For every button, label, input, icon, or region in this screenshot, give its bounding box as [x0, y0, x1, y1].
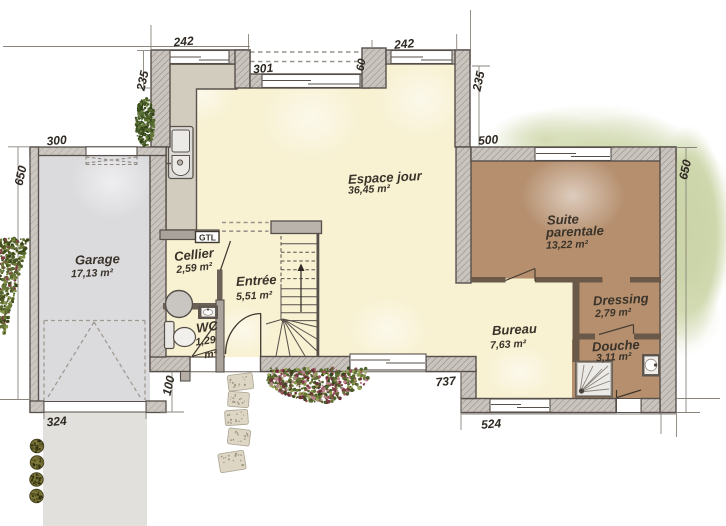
svg-text:7,63 m²: 7,63 m²	[490, 338, 527, 352]
svg-text:WC: WC	[195, 318, 219, 336]
svg-text:242: 242	[393, 36, 415, 52]
svg-text:36,45 m²: 36,45 m²	[348, 183, 391, 197]
svg-text:GTL: GTL	[199, 233, 216, 243]
svg-text:242: 242	[172, 34, 194, 50]
svg-text:13,22 m²: 13,22 m²	[546, 238, 589, 251]
svg-text:Dressing: Dressing	[593, 291, 649, 309]
svg-text:parentale: parentale	[545, 223, 604, 240]
svg-text:300: 300	[46, 133, 67, 149]
svg-text:235: 235	[133, 69, 151, 93]
svg-text:17,13 m²: 17,13 m²	[71, 267, 114, 280]
svg-text:500: 500	[478, 132, 499, 148]
svg-text:524: 524	[481, 416, 502, 432]
svg-text:Bureau: Bureau	[492, 321, 538, 338]
svg-text:3,11 m²: 3,11 m²	[596, 350, 632, 364]
svg-text:Garage: Garage	[75, 251, 120, 268]
svg-text:301: 301	[253, 61, 274, 77]
svg-text:m²: m²	[204, 348, 219, 362]
svg-text:650: 650	[12, 164, 30, 187]
svg-text:737: 737	[435, 374, 457, 390]
svg-text:5,51 m²: 5,51 m²	[236, 289, 273, 303]
svg-text:Entrée: Entrée	[236, 272, 277, 289]
svg-text:324: 324	[46, 414, 67, 430]
svg-text:100: 100	[160, 374, 178, 397]
svg-text:235: 235	[469, 70, 487, 94]
svg-text:2,79 m²: 2,79 m²	[594, 306, 632, 320]
